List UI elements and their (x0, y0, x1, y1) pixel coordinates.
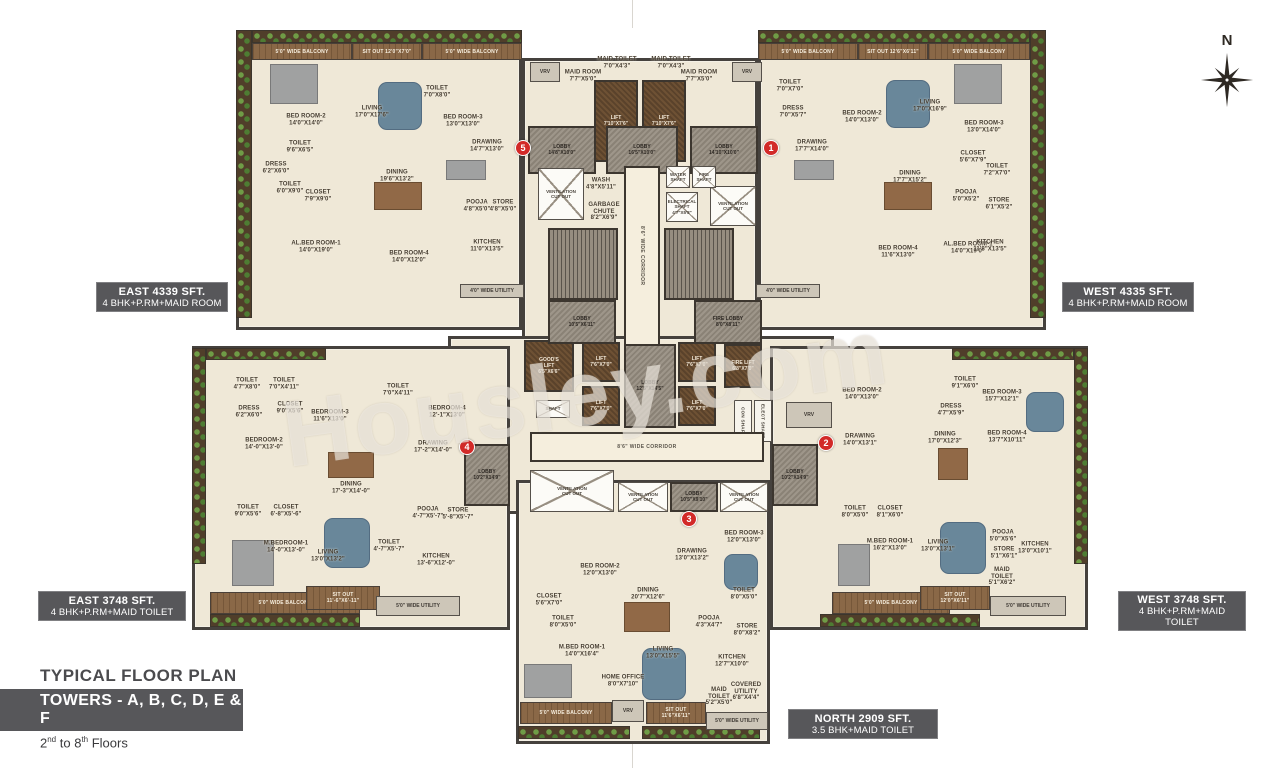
room-label: BED ROOM-2 12'0"X13'0" (580, 563, 619, 576)
unit-label-config: 4 BHK+P.RM+MAID ROOM (1067, 298, 1189, 309)
room-label: DRAWING 14'7"X13'0" (470, 139, 504, 152)
planter-strip (758, 30, 1030, 43)
room-label: POOJA 4'3"X4'7" (696, 615, 723, 628)
room-label: KITCHEN 13'0"X10'1" (1018, 541, 1052, 554)
furniture-bed (724, 554, 758, 590)
room-label: KITCHEN 13'-6"X12'-0" (417, 553, 455, 566)
unit-label-area: EAST 4339 SFT. (101, 286, 223, 298)
furniture-dining-table (938, 448, 968, 480)
planter-strip (952, 348, 1074, 360)
balcony-strip: 5'0" WIDE BALCONY (422, 43, 522, 60)
planter-strip (518, 726, 630, 739)
room-label: STORE 8'0"X8'2" (734, 623, 761, 636)
room-label: LIVING 13'0"X13'1" (921, 539, 955, 552)
goods-lift-box: GOOD'S LIFT 6'5"X6'6" (524, 340, 574, 392)
balcony-strip: 5'0" WIDE BALCONY (252, 43, 352, 60)
room-label: LIVING 13'0"X15'5" (646, 646, 680, 659)
lift-box: LIFT 7'6"X7'0" (582, 386, 620, 426)
unit-label-west-bottom: WEST 3748 SFT.4 BHK+P.RM+MAID TOILET (1118, 591, 1246, 631)
room-label: TOILET 8'0"X5'0" (842, 505, 869, 518)
unit-label-area: WEST 4335 SFT. (1067, 286, 1189, 298)
towers-title-bar: TOWERS - A, B, C, D, E & F (0, 689, 243, 731)
unit-label-config: 3.5 BHK+MAID TOILET (793, 725, 933, 736)
room-label: TOILET 7'0"X4'11" (269, 377, 299, 390)
compass: N (1198, 32, 1256, 116)
lift-box: LIFT 7'6"X7'0" (678, 342, 716, 382)
room-label: BED ROOM-2 14'0"X14'0" (286, 113, 325, 126)
unit-label-config: 4 BHK+P.RM+MAID ROOM (101, 298, 223, 309)
room-label: KITCHEN 11'8"X13'5" (973, 239, 1006, 252)
room-label: DRESS 6'2"X6'0" (236, 405, 263, 418)
furniture-bed (524, 664, 572, 698)
room-label: TOILET 8'0"X5'0" (731, 587, 758, 600)
planter-strip (210, 614, 360, 627)
furniture-bed (954, 64, 1002, 104)
room-label: TOILET 7'0"X8'0" (424, 85, 451, 98)
room-label: BED ROOM-3 12'0"X13'0" (724, 530, 763, 543)
room-label: BEDROOM-3 11'6"X13'0" (311, 409, 349, 422)
vrv-unit: VRV (786, 402, 832, 428)
room-label: DINING 17'-3"X14'-0" (332, 481, 370, 494)
utility-strip: 5'0" WIDE UTILITY (990, 596, 1066, 616)
unit-label-east-top: EAST 4339 SFT.4 BHK+P.RM+MAID ROOM (96, 282, 228, 312)
room-label: LIVING 13'0"X13'2" (311, 549, 345, 562)
room-label: KITCHEN 12'7"X10'0" (715, 654, 749, 667)
room-label: STORE 5'-8"X5'-7" (443, 507, 474, 520)
room-label: TOILET 9'0"X5'6" (235, 504, 262, 517)
room-label: POOJA 4'8"X5'0" (464, 199, 491, 212)
planter-strip (192, 348, 206, 564)
vrv-unit: VRV (612, 700, 644, 722)
room-label: MAID TOILET 5'1"X6'2" (989, 567, 1016, 587)
room-label: TOILET 9'6"X6'5" (287, 140, 314, 153)
room-label: DRAWING 14'0"X13'1" (843, 433, 877, 446)
fire-lift-box: FIRE LIFT 6'8"X7'0" (724, 344, 762, 388)
furniture-sofa (446, 160, 486, 180)
electrical-shaft: ELECTRICAL SHAFT 4'7"X5'8" (666, 192, 698, 222)
sit-out: SIT OUT 12'0"X7'0" (352, 43, 422, 60)
planter-strip (252, 30, 522, 43)
unit-marker-5: 5 (515, 140, 531, 156)
room-label: DINING 17'0"X12'3" (928, 431, 962, 444)
sit-out: SIT OUT 11'6"X6'11" (646, 702, 706, 724)
room-label: DINING 19'6"X13'2" (380, 169, 414, 182)
unit-marker-2: 2 (818, 435, 834, 451)
room-label: LIVING 17'0"X17'6" (355, 105, 389, 118)
room-label: LIVING 17'0"X16'9" (913, 99, 947, 112)
room-label: MAID ROOM 7'7"X5'0" (681, 69, 718, 82)
planter-strip (1074, 348, 1088, 564)
floor-plan: 5'0" WIDE BALCONYSIT OUT 12'0"X7'0"5'0" … (0, 0, 1280, 768)
ventilation-cutout: VENTILATION CUT OUT (720, 482, 768, 512)
floors-note-tail: Floors (88, 735, 128, 750)
room-label: DRAWING 17'7"X14'0" (795, 139, 829, 152)
unit-marker-1: 1 (763, 140, 779, 156)
floors-note-mid: to 8 (56, 735, 81, 750)
room-label: MAID TOILET 7'0"X4'3" (597, 56, 636, 69)
floors-note: 2nd to 8th Floors (40, 735, 320, 750)
room-label: DRAWING 13'0"X13'2" (675, 548, 709, 561)
furniture-bed (1026, 392, 1064, 432)
room-label: KITCHEN 11'0"X13'5" (470, 239, 503, 252)
fire-shaft: FIRE SHAFT (692, 166, 716, 188)
unit-label-west-top: WEST 4335 SFT.4 BHK+P.RM+MAID ROOM (1062, 282, 1194, 312)
guide-line (632, 0, 633, 28)
room-label: DRAWING 17'-2"X14'-0" (414, 440, 452, 453)
balcony-strip: 5'0" WIDE BALCONY (758, 43, 858, 60)
room-label: BED ROOM-3 15'7"X12'1" (982, 389, 1021, 402)
room-label: BED ROOM-4 13'7"X10'11" (987, 430, 1026, 443)
lobby-box: LOBBY 10'5"X9'10" (670, 482, 718, 512)
planter-strip (820, 614, 980, 627)
room-label: CLOSET 5'6"X7'0" (536, 593, 563, 606)
room-label: POOJA 5'0"X5'6" (990, 529, 1017, 542)
vrv-unit: VRV (732, 62, 762, 82)
room-label: DRESS 6'2"X6'0" (263, 161, 290, 174)
vrv-unit: VRV (530, 62, 560, 82)
room-label: STORE 4'8"X5'0" (490, 199, 517, 212)
utility-strip: 5'0" WIDE UTILITY (706, 712, 768, 730)
room-label: TOILET 4'-7"X5'-7" (374, 539, 405, 552)
guide-line (632, 744, 633, 768)
furniture-dining-table (374, 182, 422, 210)
balcony-strip: 5'0" WIDE BALCONY (520, 702, 612, 724)
room-label: TOILET 4'7"X8'0" (234, 377, 261, 390)
room-label: MAID TOILET 7'0"X4'3" (651, 56, 690, 69)
unit-label-config: 4 BHK+P.RM+MAID TOILET (43, 607, 181, 618)
staircase (548, 228, 618, 300)
ventilation-cutout: VENTILATION CUT OUT (710, 186, 756, 226)
furniture-dining-table (884, 182, 932, 210)
room-label: BEDROOM-4 12'-1"X13'0" (428, 405, 466, 418)
ventilation-cutout: VENTILATION CUT OUT (618, 482, 668, 512)
room-label: CLOSET 9'0"X5'6" (277, 401, 304, 414)
compass-rose-icon (1198, 49, 1256, 111)
room-label: M.BED ROOM-1 16'2"X13'0" (867, 538, 913, 551)
room-label: CLOSET 7'9"X9'0" (305, 189, 332, 202)
room-label: TOILET 6'0"X9'0" (277, 181, 304, 194)
lobby-box: LOBBY 14'8"X10'0" (528, 126, 596, 174)
room-label: DINING 17'7"X15'2" (893, 170, 927, 183)
water-shaft: WATER SHAFT (666, 166, 690, 188)
furniture-bed (838, 544, 870, 586)
utility-strip: 4'0" WIDE UTILITY (756, 284, 820, 298)
room-label: DRESS 4'7"X5'9" (938, 403, 965, 416)
staircase (664, 228, 734, 300)
planter-strip (206, 348, 326, 360)
corridor: 8'6" WIDE CORRIDOR (530, 432, 764, 462)
sit-out: SIT OUT 12'0"X6'11" (920, 586, 990, 610)
floor-plan-page: 5'0" WIDE BALCONYSIT OUT 12'0"X7'0"5'0" … (0, 0, 1280, 768)
room-label: CLOSET 8'1"X6'0" (877, 505, 904, 518)
furniture-bed (270, 64, 318, 104)
room-label: DRESS 7'0"X5'7" (780, 105, 807, 118)
furniture-sofa (794, 160, 834, 180)
unit-label-area: EAST 3748 SFT. (43, 595, 181, 607)
room-label: STORE 6'1"X5'2" (986, 197, 1013, 210)
room-label: BED ROOM-2 14'0"X13'0" (842, 387, 881, 400)
fire-lobby-box: FIRE LOBBY 8'0"X8'11" (694, 300, 762, 344)
ventilation-cutout: VENTILATION CUT OUT (530, 470, 614, 512)
room-label: TOILET 7'0"X7'0" (777, 79, 804, 92)
room-label: TOILET 7'0"X4'11" (383, 383, 413, 396)
unit-label-north: NORTH 2909 SFT.3.5 BHK+MAID TOILET (788, 709, 938, 739)
room-label: POOJA 5'0"X5'2" (953, 189, 980, 202)
room-label: COVERED UTILITY 6'8"X4'4" (731, 682, 761, 702)
room-label: BED ROOM-3 13'0"X13'0" (443, 114, 482, 127)
room-label: AL.BED ROOM-1 14'0"X19'0" (291, 240, 340, 253)
furniture-dining-table (328, 452, 374, 478)
unit-label-config: 4 BHK+P.RM+MAID TOILET (1123, 606, 1241, 628)
sit-out: SIT OUT 12'6"X6'11" (858, 43, 928, 60)
utility-strip: 5'0" WIDE UTILITY (376, 596, 460, 616)
room-label: WASH 4'8"X5'11" (586, 177, 616, 190)
room-label: CLOSET 5'6"X7'9" (960, 150, 987, 163)
plan-title: TYPICAL FLOOR PLAN (40, 666, 320, 686)
unit-marker-3: 3 (681, 511, 697, 527)
room-label: M.BED ROOM-1 14'0"X16'4" (559, 644, 605, 657)
planter-strip (1030, 30, 1046, 318)
floors-note-ordinal: nd (47, 735, 56, 744)
room-label: TOILET 8'0"X5'0" (550, 615, 577, 628)
room-label: BED ROOM-4 14'0"X12'0" (389, 250, 428, 263)
corridor: 8'6" WIDE CORRIDOR (624, 166, 660, 346)
lobby-box: LOBBY 12'5"X14'5" (624, 344, 676, 428)
room-label: BED ROOM-4 11'6"X13'0" (878, 245, 917, 258)
balcony-strip: 5'0" WIDE BALCONY (928, 43, 1030, 60)
room-label: MAID ROOM 7'7"X5'0" (565, 69, 602, 82)
unit-label-area: NORTH 2909 SFT. (793, 713, 933, 725)
room-label: POOJA 4'-7"X5'-7" (413, 506, 444, 519)
lobby-box: LOBBY 10'2"X14'9" (772, 444, 818, 506)
lobby-box: LOBBY 10'5"X6'11" (548, 300, 616, 344)
room-label: TOILET 7'2"X7'0" (984, 163, 1011, 176)
planter-strip (236, 30, 252, 318)
room-label: TOILET 9'1"X6'0" (952, 376, 979, 389)
sit-out: SIT OUT 11'-6"X6'-11" (306, 586, 380, 610)
room-label: GARBAGE CHUTE 8'2"X6'9" (588, 202, 619, 222)
utility-strip: 4'0" WIDE UTILITY (460, 284, 524, 298)
furniture-dining-table (624, 602, 670, 632)
unit-label-area: WEST 3748 SFT. (1123, 594, 1241, 606)
room-label: STORE 5'1"X6'1" (991, 546, 1018, 559)
room-label: BED ROOM-2 14'0"X13'0" (842, 110, 881, 123)
room-label: M.BEDROOM-1 14'-0"X13'-0" (264, 540, 308, 553)
room-label: DINING 20'7"X12'6" (631, 587, 665, 600)
room-label: BED ROOM-3 13'0"X14'0" (964, 120, 1003, 133)
shaft-box: SHAFT (536, 400, 570, 418)
unit-marker-4: 4 (459, 439, 475, 455)
room-label: MAID TOILET 5'2"X5'0" (706, 687, 733, 707)
compass-north-label: N (1198, 32, 1256, 49)
room-label: CLOSET 6'-8"X5'-6" (271, 504, 302, 517)
unit-label-east-bottom: EAST 3748 SFT.4 BHK+P.RM+MAID TOILET (38, 591, 186, 621)
ventilation-cutout: VENTILATION CUT OUT (538, 168, 584, 220)
title-block: TYPICAL FLOOR PLAN TOWERS - A, B, C, D, … (0, 666, 320, 750)
room-label: HOME OFFICE 8'0"X7'10" (602, 674, 645, 687)
room-label: BEDROOM-2 14'-0"X13'-0" (245, 437, 283, 450)
lift-box: LIFT 7'6"X7'0" (582, 342, 620, 382)
lift-box: LIFT 7'6"X7'0" (678, 386, 716, 426)
